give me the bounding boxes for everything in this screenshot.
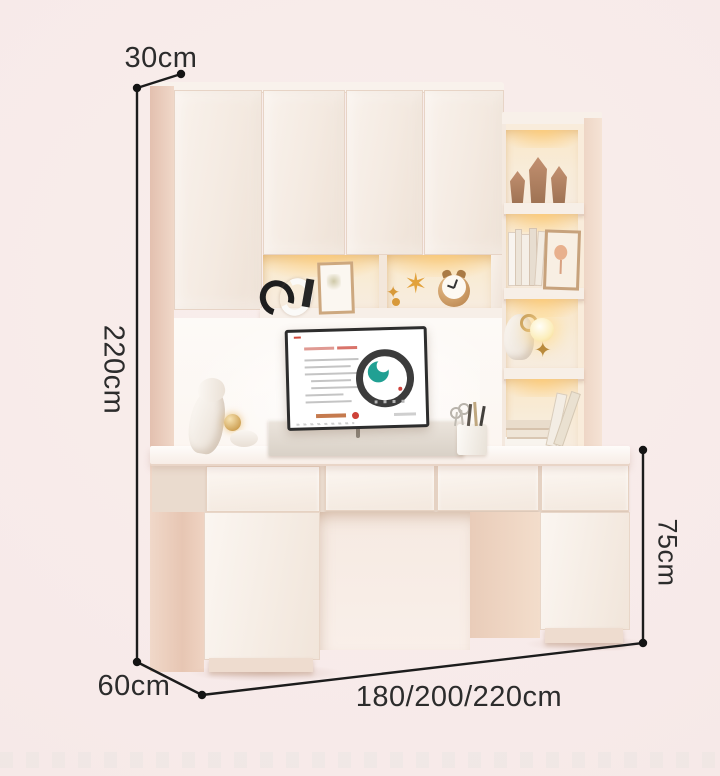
hutch-left-side-panel: [150, 86, 174, 458]
desk-lamp-sculpture: [184, 378, 258, 456]
left-pedestal-plinth: [209, 658, 313, 672]
screen-text-line: [305, 393, 343, 396]
screen-taskbar-ticks: [296, 422, 354, 426]
screen-red-tick: [294, 337, 301, 339]
figurine: [529, 157, 547, 203]
screen-text-line: [305, 365, 351, 368]
screen-text-line: [311, 379, 351, 382]
book: [506, 420, 552, 430]
right-pedestal-plinth: [545, 628, 623, 643]
dimension-label-desk-height: 75cm: [652, 506, 683, 600]
furniture-dimension-diagram: ✶ ✦ ✦: [0, 0, 720, 776]
ball-ornament: [392, 298, 400, 306]
sculpture-and-lamp-decor: ✦: [504, 306, 578, 368]
donut-red-dot: [398, 387, 402, 391]
screen-text-line: [305, 372, 361, 376]
pen-cup: [457, 424, 487, 455]
faint-watermark-strip: [0, 752, 720, 768]
screen-gray-text: [394, 412, 416, 416]
screen-record-dot: [352, 412, 359, 419]
alarm-clock: [438, 271, 470, 308]
drawer-front: [437, 463, 539, 511]
dimension-label-top-depth: 30cm: [118, 42, 204, 75]
picture-frame: [317, 261, 355, 314]
ornament-figures: ✶ ✦: [384, 278, 438, 308]
screen-heading-bar: [337, 346, 357, 350]
art-print-frame: [543, 229, 581, 290]
shelf-unit-side-panel: [584, 118, 602, 448]
cabinet-door-tall: [174, 90, 262, 310]
gold-ball: [224, 414, 241, 431]
gold-star-ornament: ✦: [534, 340, 552, 361]
screen-text-line: [311, 386, 359, 389]
drawer-front: [325, 463, 435, 511]
right-pedestal-door: [540, 512, 630, 630]
monitor: [285, 326, 430, 431]
screen-heading-bar: [304, 347, 334, 351]
screen-text-line: [306, 400, 352, 403]
arc-bookends-decor: [258, 276, 320, 308]
cabinet-door: [346, 90, 423, 255]
drawer-front: [541, 465, 629, 511]
cabinet-door: [263, 90, 345, 255]
knee-space: [318, 512, 470, 650]
screen-text-line: [304, 358, 358, 362]
clock-face: [442, 275, 466, 299]
drawer-front: [206, 466, 320, 512]
figurine: [551, 166, 567, 203]
dimension-label-height: 220cm: [97, 321, 130, 419]
stacked-books-decor: [505, 392, 579, 450]
abstract-figurines-decor: [508, 150, 576, 203]
left-pedestal-door: [204, 512, 320, 660]
star-ornament: ✶: [404, 270, 427, 298]
right-pedestal-side: [470, 512, 540, 638]
dimension-label-width: 180/200/220cm: [346, 681, 572, 714]
screen-orange-text: [316, 413, 346, 418]
figurine: [510, 171, 525, 203]
books-and-frame-decor: [506, 226, 578, 288]
cabinet-door: [424, 90, 504, 255]
dimension-label-bottom-depth: 60cm: [86, 670, 182, 703]
sculpture-base: [230, 430, 258, 447]
screen-icon-row: [375, 400, 409, 404]
